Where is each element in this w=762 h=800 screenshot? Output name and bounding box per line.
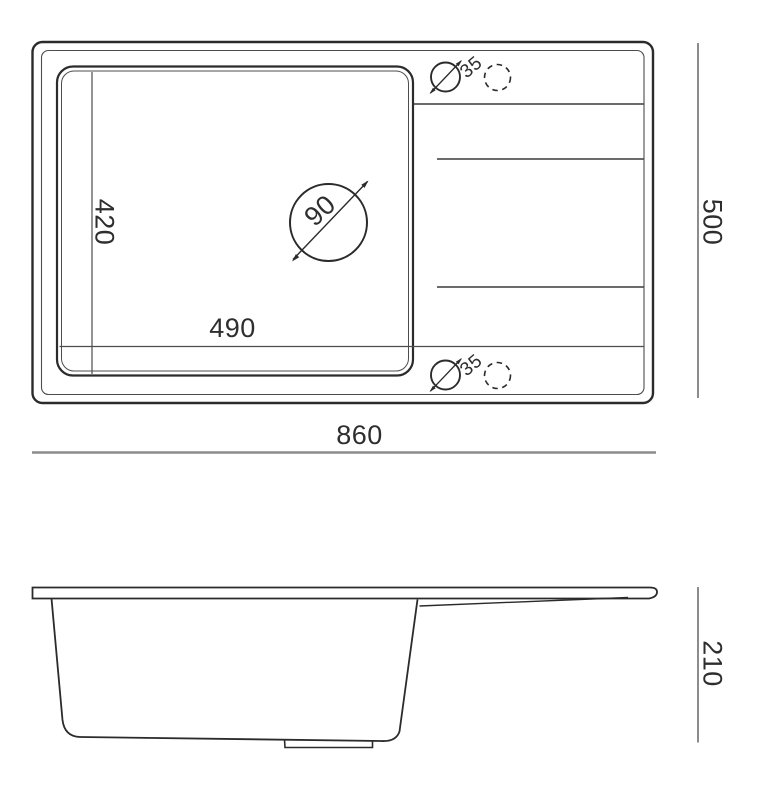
overall-width-dimension: 860 — [32, 420, 656, 453]
overall-height-dimension: 210 — [698, 587, 728, 743]
drawing-canvas: 90 35 35 420 49 — [0, 0, 762, 800]
bowl-width-label: 490 — [209, 313, 256, 343]
side-view-bowl-profile — [52, 599, 418, 742]
bowl-depth-label: 420 — [90, 199, 120, 246]
overall-depth-dimension: 500 — [698, 43, 728, 398]
overall-width-label: 860 — [336, 420, 383, 450]
sink-side-view: 210 — [33, 587, 728, 748]
overall-depth-label: 500 — [698, 199, 728, 246]
side-view-rim — [33, 588, 658, 599]
sink-top-view: 90 35 35 420 49 — [32, 42, 728, 453]
overall-height-label: 210 — [698, 640, 728, 687]
sink-technical-drawing: 90 35 35 420 49 — [0, 0, 762, 800]
